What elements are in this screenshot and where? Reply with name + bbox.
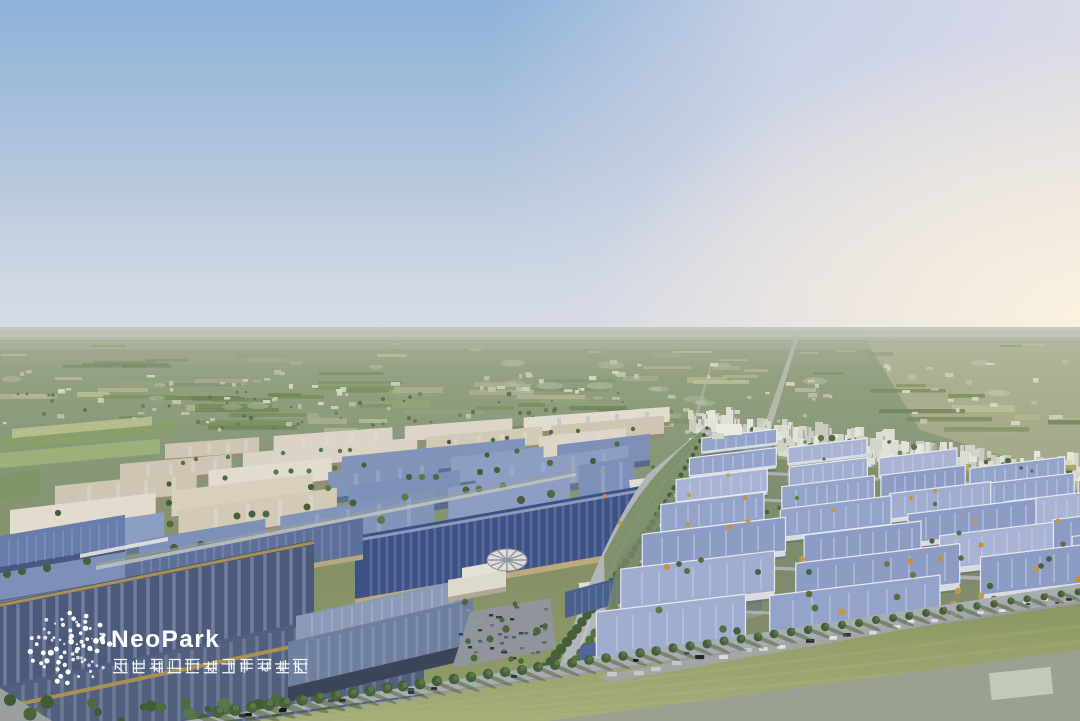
svg-text:NeoPark: NeoPark	[111, 626, 220, 653]
